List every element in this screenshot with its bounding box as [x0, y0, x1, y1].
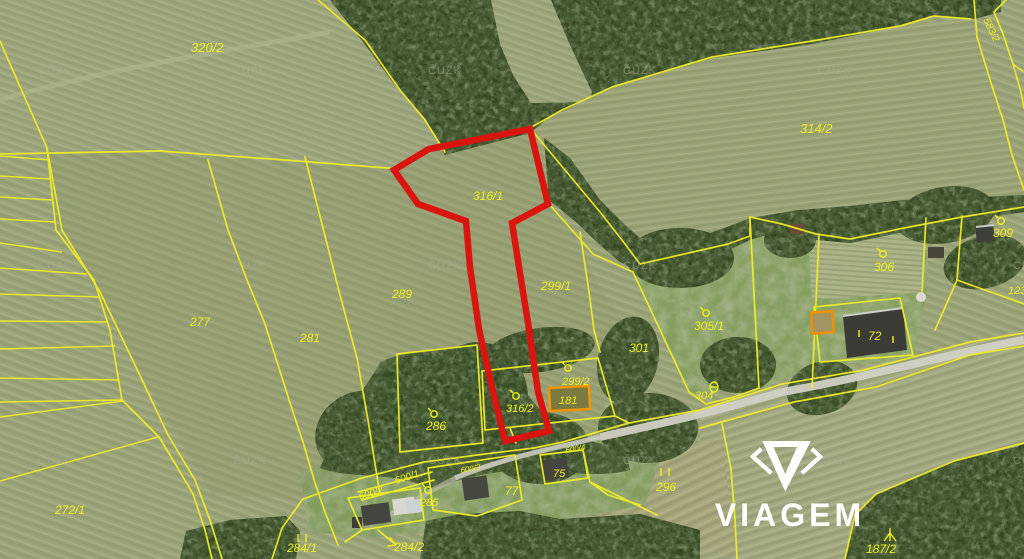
svg-text:289: 289	[391, 287, 412, 301]
svg-text:ČÚZK: ČÚZK	[428, 259, 462, 272]
svg-text:ČÚZK: ČÚZK	[38, 64, 72, 77]
svg-text:281: 281	[299, 331, 320, 345]
svg-text:ČÚZK: ČÚZK	[818, 259, 852, 272]
svg-text:306: 306	[874, 260, 894, 274]
svg-text:ČÚZK: ČÚZK	[1013, 454, 1024, 467]
svg-text:ČÚZK: ČÚZK	[233, 259, 267, 272]
svg-text:277: 277	[189, 315, 211, 329]
svg-text:ČÚZK: ČÚZK	[623, 259, 657, 272]
svg-text:ČÚZK: ČÚZK	[1013, 64, 1024, 77]
svg-text:ČÚZK: ČÚZK	[623, 64, 657, 77]
svg-text:316/1: 316/1	[473, 189, 503, 203]
svg-text:284/2: 284/2	[393, 540, 424, 554]
svg-text:123: 123	[1008, 285, 1024, 297]
svg-text:301: 301	[629, 341, 649, 355]
svg-text:ČÚZK: ČÚZK	[623, 454, 657, 467]
svg-text:284/1: 284/1	[286, 541, 317, 555]
svg-text:ČÚZK: ČÚZK	[233, 64, 267, 77]
svg-text:ČÚZK: ČÚZK	[428, 64, 462, 77]
svg-text:316/2: 316/2	[506, 403, 534, 415]
svg-text:187/2: 187/2	[866, 542, 896, 556]
svg-text:ČÚZK: ČÚZK	[428, 454, 462, 467]
svg-text:309: 309	[993, 226, 1013, 240]
svg-text:72: 72	[868, 329, 882, 343]
svg-text:181: 181	[559, 395, 577, 407]
svg-text:299/2: 299/2	[561, 376, 590, 388]
svg-text:272/1: 272/1	[54, 503, 85, 517]
svg-text:VIAGEM: VIAGEM	[715, 497, 865, 533]
svg-text:285: 285	[419, 497, 439, 509]
svg-text:286: 286	[425, 419, 446, 433]
svg-text:ČÚZK: ČÚZK	[38, 454, 72, 467]
svg-text:ČÚZK: ČÚZK	[818, 454, 852, 467]
svg-text:75: 75	[553, 468, 566, 480]
svg-text:ČÚZK: ČÚZK	[1013, 259, 1024, 272]
svg-text:304: 304	[695, 390, 713, 402]
svg-text:320/2: 320/2	[191, 40, 224, 55]
svg-text:314/2: 314/2	[800, 121, 833, 136]
svg-text:296: 296	[655, 480, 676, 494]
svg-text:ČÚZK: ČÚZK	[233, 454, 267, 467]
svg-text:ČÚZK: ČÚZK	[38, 259, 72, 272]
svg-text:77: 77	[505, 484, 520, 498]
svg-text:299/1: 299/1	[540, 279, 571, 293]
svg-text:ČÚZK: ČÚZK	[818, 64, 852, 77]
svg-text:305/1: 305/1	[694, 319, 724, 333]
